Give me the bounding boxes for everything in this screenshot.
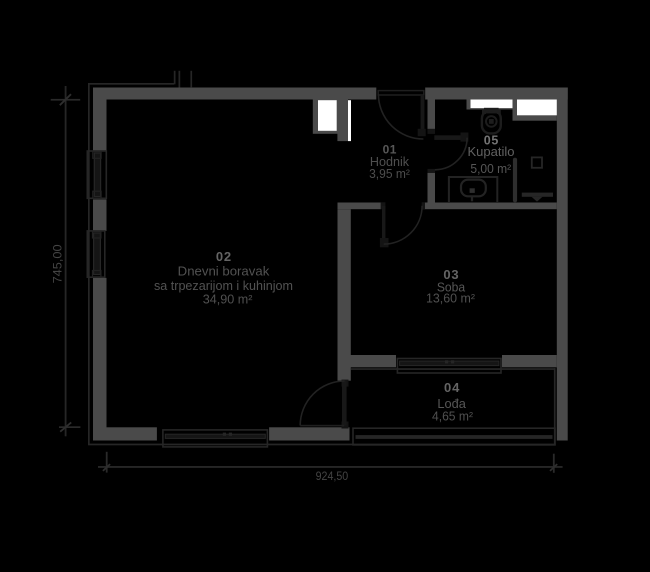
svg-text:5,00 m²: 5,00 m² xyxy=(470,162,511,176)
svg-text:745,00: 745,00 xyxy=(53,244,65,283)
svg-text:4,65 m²: 4,65 m² xyxy=(432,410,473,424)
svg-text:04: 04 xyxy=(444,380,460,395)
svg-text:Kupatilo: Kupatilo xyxy=(468,145,515,159)
svg-text:3,95 m²: 3,95 m² xyxy=(369,167,410,181)
svg-text:13,60 m²: 13,60 m² xyxy=(426,291,475,305)
svg-text:924,50: 924,50 xyxy=(316,471,349,483)
svg-text:34,90 m²: 34,90 m² xyxy=(203,292,253,306)
svg-text:Dnevni boravak: Dnevni boravak xyxy=(178,264,270,278)
svg-text:sa trpezarijom i kuhinjom: sa trpezarijom i kuhinjom xyxy=(154,279,293,293)
svg-text:02: 02 xyxy=(216,249,231,264)
